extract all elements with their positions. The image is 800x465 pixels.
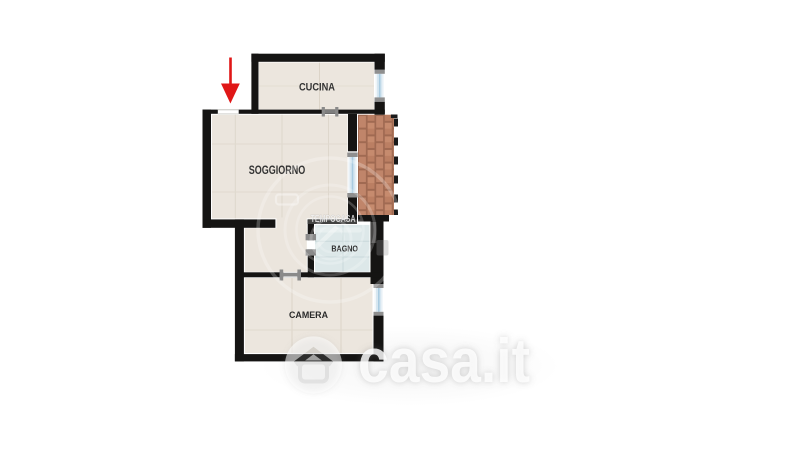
svg-text:casa.it: casa.it	[358, 327, 530, 396]
svg-text:TEMPOCASA: TEMPOCASA	[311, 214, 356, 225]
svg-text:CUCINA: CUCINA	[299, 81, 335, 93]
svg-text:CAMERA: CAMERA	[289, 310, 328, 321]
